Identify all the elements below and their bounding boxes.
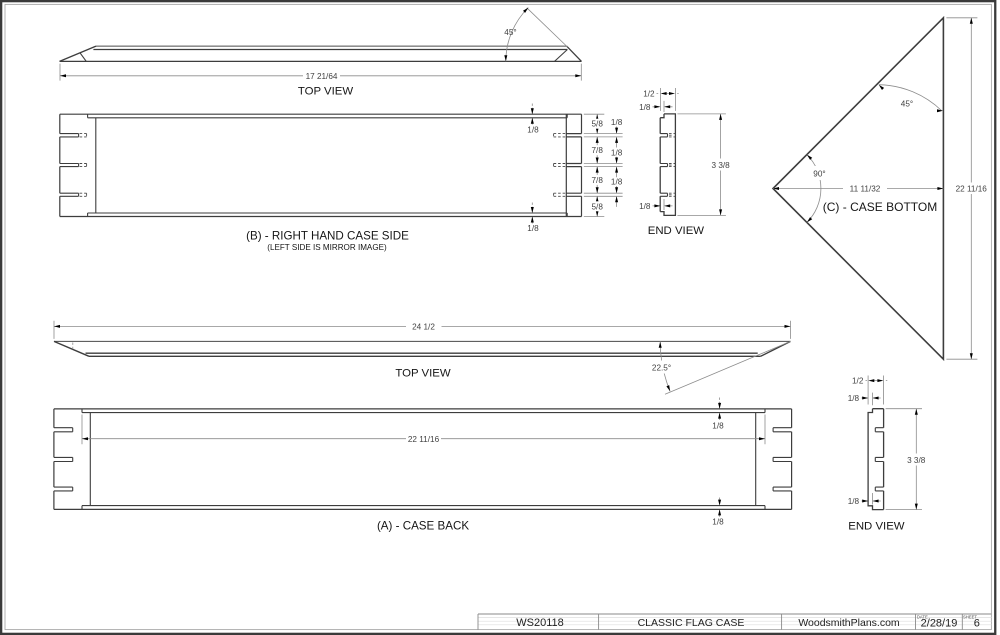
svg-text:1/8: 1/8: [611, 148, 623, 157]
svg-text:1/8: 1/8: [611, 118, 623, 127]
svg-text:11 11/32: 11 11/32: [850, 185, 881, 194]
svg-text:1/8: 1/8: [848, 394, 860, 403]
svg-text:TOP VIEW: TOP VIEW: [395, 367, 451, 379]
svg-text:5/8: 5/8: [592, 202, 604, 211]
svg-text:CLASSIC FLAG CASE: CLASSIC FLAG CASE: [638, 617, 745, 629]
svg-text:WS20118: WS20118: [516, 617, 564, 629]
svg-text:TOP VIEW: TOP VIEW: [298, 85, 354, 97]
svg-text:90°: 90°: [813, 169, 825, 178]
svg-text:1/8: 1/8: [611, 178, 623, 187]
svg-text:7/8: 7/8: [592, 176, 604, 185]
svg-text:22 11/16: 22 11/16: [956, 185, 988, 194]
svg-text:17 21/64: 17 21/64: [306, 72, 338, 81]
svg-text:24 1/2: 24 1/2: [412, 323, 435, 332]
svg-text:1/8: 1/8: [639, 103, 651, 112]
svg-text:3 3/8: 3 3/8: [907, 456, 926, 465]
svg-text:(C) - CASE BOTTOM: (C) - CASE BOTTOM: [823, 200, 937, 214]
svg-text:22 11/16: 22 11/16: [408, 435, 440, 444]
svg-text:7/8: 7/8: [592, 146, 604, 155]
svg-text:22.5°: 22.5°: [652, 363, 671, 372]
svg-text:(LEFT SIDE IS MIRROR IMAGE): (LEFT SIDE IS MIRROR IMAGE): [267, 243, 387, 252]
svg-text:1/2: 1/2: [852, 377, 864, 386]
svg-text:(B) - RIGHT HAND CASE SIDE: (B) - RIGHT HAND CASE SIDE: [246, 229, 409, 242]
svg-text:3 3/8: 3 3/8: [711, 161, 730, 170]
svg-text:6: 6: [974, 618, 980, 630]
svg-text:(A) - CASE BACK: (A) - CASE BACK: [377, 519, 469, 532]
svg-text:WoodsmithPlans.com: WoodsmithPlans.com: [798, 617, 900, 629]
svg-text:45°: 45°: [901, 100, 913, 109]
svg-text:END VIEW: END VIEW: [648, 225, 705, 237]
svg-text:45°: 45°: [504, 28, 516, 37]
svg-text:1/8: 1/8: [639, 202, 651, 211]
svg-text:1/2: 1/2: [643, 90, 655, 99]
svg-text:1/8: 1/8: [712, 421, 724, 430]
svg-text:1/8: 1/8: [527, 126, 539, 135]
svg-text:END VIEW: END VIEW: [848, 521, 905, 533]
svg-text:1/8: 1/8: [848, 497, 860, 506]
svg-text:2/28/19: 2/28/19: [921, 617, 958, 629]
svg-text:1/8: 1/8: [712, 517, 724, 526]
svg-text:1/8: 1/8: [527, 224, 539, 233]
svg-text:5/8: 5/8: [592, 120, 604, 129]
